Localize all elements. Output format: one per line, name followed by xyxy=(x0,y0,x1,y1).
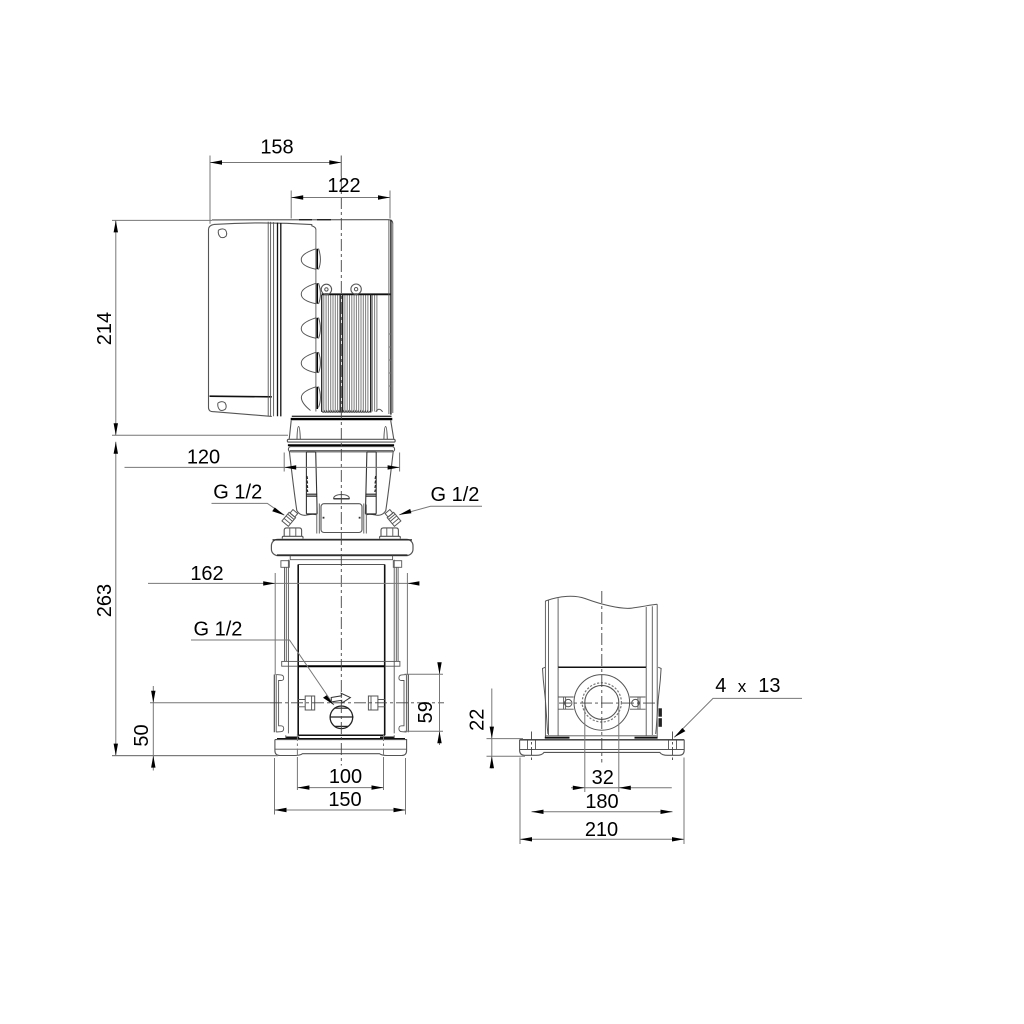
svg-text:214: 214 xyxy=(94,312,116,345)
svg-text:150: 150 xyxy=(328,789,361,811)
svg-text:4: 4 xyxy=(715,675,726,697)
svg-text:x: x xyxy=(738,677,747,696)
svg-text:120: 120 xyxy=(187,446,220,468)
svg-text:50: 50 xyxy=(131,724,153,746)
svg-text:13: 13 xyxy=(758,675,780,697)
svg-text:22: 22 xyxy=(467,709,489,731)
svg-text:162: 162 xyxy=(190,563,223,585)
svg-text:122: 122 xyxy=(327,175,360,197)
svg-text:32: 32 xyxy=(592,767,614,789)
svg-text:59: 59 xyxy=(415,701,437,723)
svg-text:263: 263 xyxy=(94,584,116,617)
svg-text:G 1/2: G 1/2 xyxy=(213,482,262,504)
svg-text:158: 158 xyxy=(260,137,293,159)
svg-text:G 1/2: G 1/2 xyxy=(194,619,243,641)
svg-text:100: 100 xyxy=(329,766,362,788)
svg-text:210: 210 xyxy=(585,819,618,841)
svg-text:G 1/2: G 1/2 xyxy=(431,484,480,506)
svg-text:180: 180 xyxy=(585,791,618,813)
